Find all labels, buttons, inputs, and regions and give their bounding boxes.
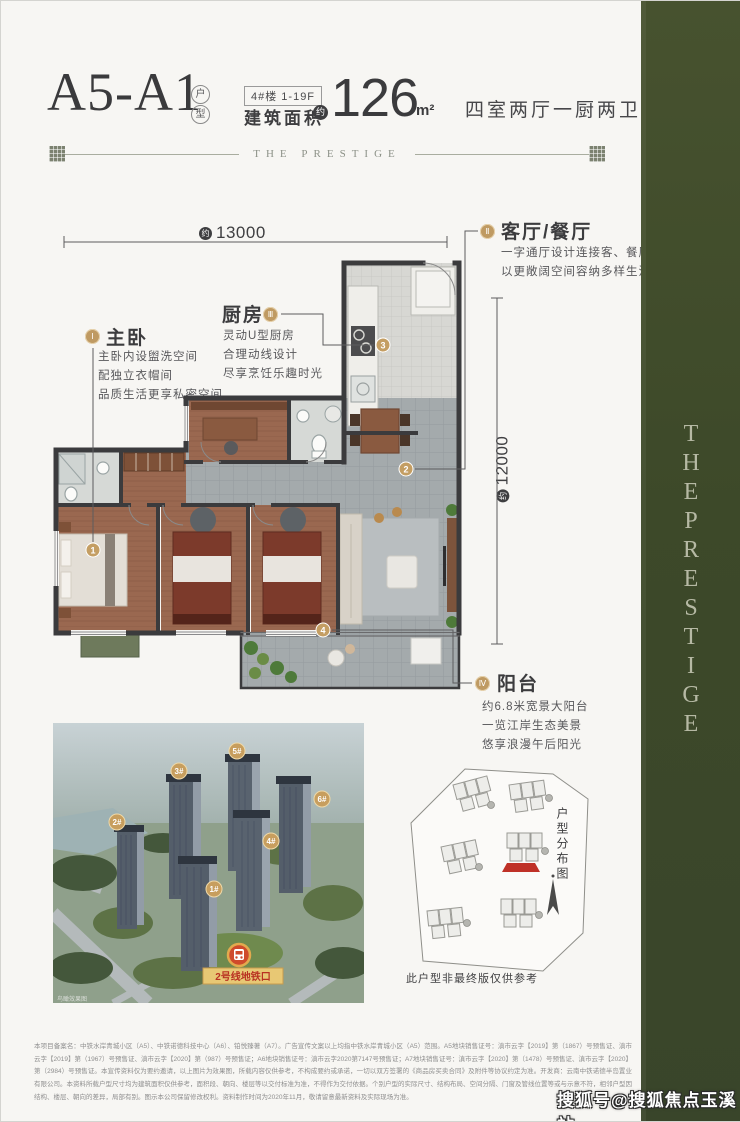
tower-badge-2: 2#: [113, 818, 122, 827]
area-unit: m²: [416, 102, 434, 119]
dimension-width: 约 13000: [199, 223, 266, 243]
approx-circle: 约: [313, 105, 328, 120]
floor-plan: 1 2 3 4: [51, 256, 463, 696]
approx-circle: 约: [199, 227, 212, 240]
building-tag: 4#楼 1-19F: [244, 86, 322, 106]
plan-marker-3: 3: [380, 341, 385, 351]
brand-divider-text: THE PRESTIGE: [239, 148, 414, 160]
tower-badge-5: 5#: [233, 747, 242, 756]
metro-icon: [228, 944, 250, 966]
legal-disclaimer: 本项目备案名：中铁水岸青城小区（A5）、中铁诺德科技中心（A6）、铂悦臻著（A7…: [34, 1041, 632, 1104]
dimension-width-value: 13000: [216, 223, 266, 243]
master-bed: [59, 522, 127, 618]
type-circle-xing: 型: [191, 105, 210, 124]
aerial-render: 1# 2# 3# 4# 5# 6# 2号线地铁口: [53, 723, 364, 1003]
callout-badge-living: Ⅱ: [480, 224, 495, 239]
floorplan-poster: A5-A1 户 型 4#楼 1-19F 建筑面积 约 126 m² 四室两厅一厨…: [0, 0, 740, 1122]
tower: [114, 825, 144, 929]
aerial-caption: 鸟瞰效果图: [57, 994, 87, 1003]
approx-circle: 约: [496, 489, 509, 502]
brand-divider: THE PRESTIGE: [49, 146, 605, 162]
tower: [233, 810, 270, 931]
layout-description: 四室两厅一厨两卫: [465, 95, 641, 122]
wardrobe: [124, 453, 184, 471]
tower: [276, 776, 311, 893]
tower-badge-1: 1#: [210, 885, 219, 894]
dimension-depth: 约 12000: [492, 436, 512, 503]
dimension-depth-value: 12000: [492, 436, 512, 486]
tower: [178, 856, 217, 971]
page-title: A5-A1: [47, 65, 202, 119]
site-plan: [403, 743, 631, 1001]
divider-line: [415, 154, 589, 155]
plan-marker-2: 2: [403, 465, 408, 475]
area-value: 126: [331, 71, 418, 125]
metro-banner-text: 2号线地铁口: [215, 970, 271, 983]
tower-badge-4: 4#: [267, 837, 276, 846]
type-circle-hu: 户: [191, 85, 210, 104]
floor-fills: [56, 263, 459, 688]
brand-vertical-text: THEPRESTIGE: [677, 421, 704, 721]
metro-banner: 2号线地铁口: [203, 968, 283, 984]
callout-title-living: 客厅/餐厅: [501, 217, 592, 244]
callout-badge-balcony: Ⅳ: [475, 676, 490, 691]
plan-marker-4: 4: [320, 626, 325, 636]
area-label: 建筑面积: [244, 104, 324, 129]
tower-badge-3: 3#: [175, 767, 184, 776]
tower-badge-6: 6#: [318, 795, 327, 804]
callout-title-balcony: 阳台: [497, 669, 539, 696]
callout-lines-living: 一字通厅设计连接客、餐厅 以更敞阔空间容纳多样生活: [501, 244, 651, 282]
divider-line: [65, 154, 239, 155]
seal-ornament-left: [49, 146, 65, 162]
highlighted-unit: [502, 863, 540, 872]
seal-ornament-right: [589, 146, 605, 162]
siteplan-title: 户型分布图: [554, 807, 571, 882]
plan-marker-1: 1: [90, 546, 95, 556]
watermark: 搜狐号@搜狐焦点玉溪站: [557, 1086, 740, 1122]
siteplan-note: 此户型非最终版仅供参考: [406, 970, 538, 986]
